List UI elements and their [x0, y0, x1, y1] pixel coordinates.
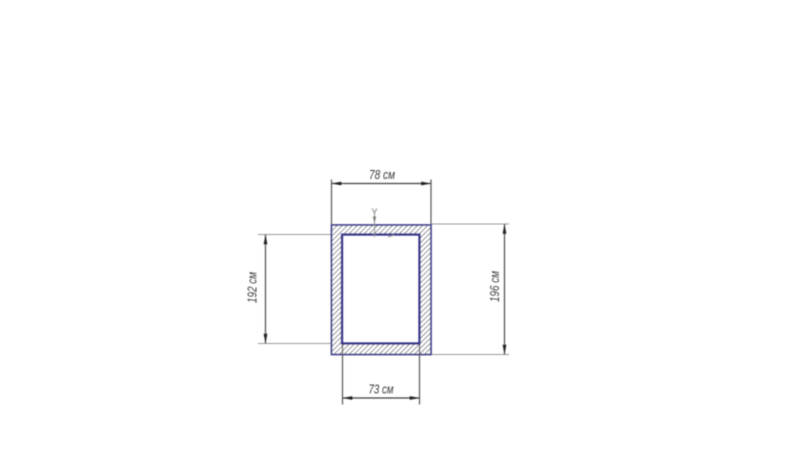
- svg-text:78 см: 78 см: [369, 167, 395, 182]
- svg-text:196 см: 196 см: [487, 271, 502, 302]
- svg-text:73 см: 73 см: [369, 382, 394, 397]
- svg-text:192 см: 192 см: [245, 272, 260, 303]
